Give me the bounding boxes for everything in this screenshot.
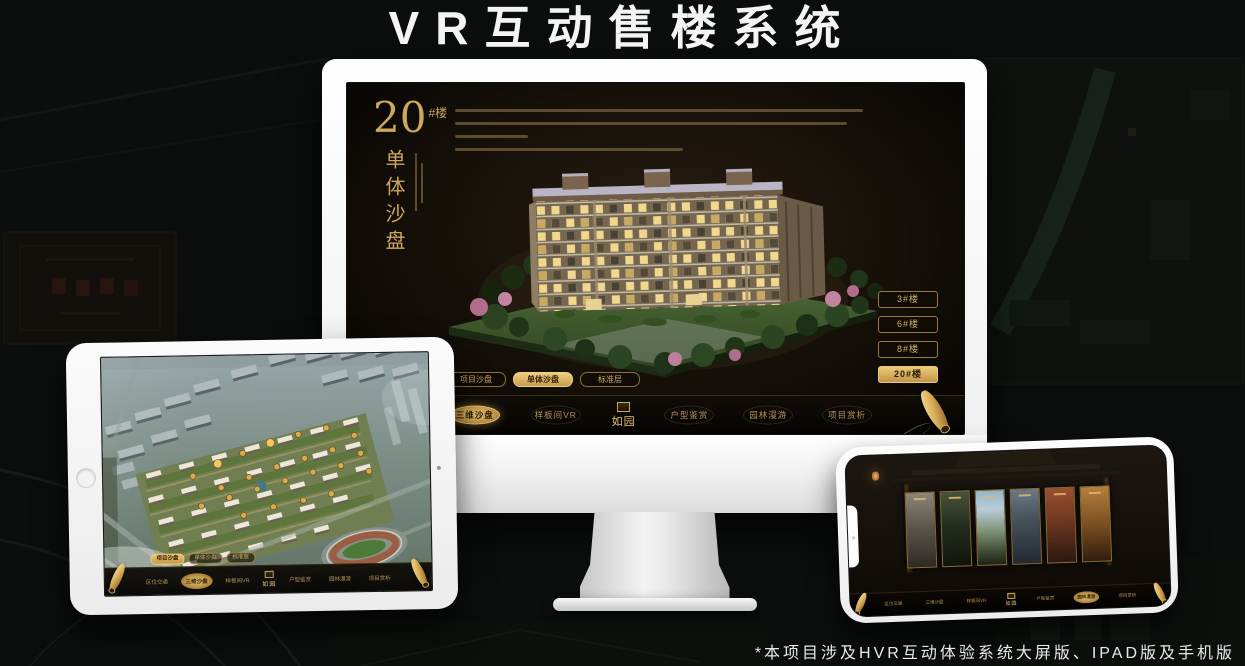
- nav-item-location-traffic[interactable]: 区位交通: [141, 573, 173, 590]
- gallery-panel-2[interactable]: [939, 490, 972, 567]
- building-heading: 20 #楼: [373, 97, 447, 139]
- tab-single-sandtable[interactable]: 单体沙盘: [513, 372, 573, 387]
- lantern-icon: [872, 471, 879, 480]
- nav-item-unit-plans[interactable]: 户型鉴赏: [284, 571, 316, 588]
- footnote: *本项目涉及HVR互动体验系统大屏版、IPAD版及手机版: [755, 639, 1235, 663]
- nav-item-garden-roam[interactable]: 园林漫游: [743, 405, 793, 425]
- gallery-panel-4[interactable]: [1009, 488, 1042, 565]
- brand-logo-text: 如园: [1005, 600, 1017, 607]
- floor-button-6[interactable]: 6#楼: [878, 316, 938, 333]
- nav-item-garden-roam[interactable]: 园林漫游: [324, 570, 356, 587]
- phone-notch: [846, 505, 859, 567]
- gallery-panel-5[interactable]: [1044, 487, 1077, 564]
- nav-item-3d-sandtable[interactable]: 三维沙盘: [921, 596, 947, 609]
- tab-standard-floor[interactable]: 标准层: [226, 552, 255, 563]
- scene-gallery: [847, 483, 1169, 570]
- nav-item-location-traffic[interactable]: 区位交通: [880, 598, 906, 611]
- brand-logo: 如园: [612, 402, 636, 429]
- home-button: [76, 468, 96, 488]
- brand-logo: 如园: [1005, 593, 1017, 607]
- floor-button-20[interactable]: 20#楼: [878, 366, 938, 383]
- tablet-nav-bar: 区位交通 三维沙盘 样板间VR 如园 户型鉴赏 园林漫游 项目赏析: [105, 562, 432, 596]
- seal-icon: [1007, 593, 1015, 599]
- phone-device: 区位交通 三维沙盘 样板间VR 如园 户型鉴赏 园林漫游 项目赏析: [835, 436, 1179, 624]
- nav-item-model-room-vr[interactable]: 样板间VR: [962, 595, 990, 608]
- heading-number: 20: [373, 97, 426, 139]
- page: VR互动售楼系统 20 #楼 单体沙盘: [0, 0, 1245, 666]
- building-model-3d[interactable]: [435, 149, 895, 399]
- nav-item-model-room-vr[interactable]: 样板间VR: [220, 572, 254, 589]
- nav-item-unit-plans[interactable]: 户型鉴赏: [664, 405, 714, 425]
- tablet-view-tab-group: 项目沙盘 单体沙盘 标准层: [150, 552, 255, 565]
- brand-logo: 如园: [262, 571, 276, 588]
- floor-button-3[interactable]: 3#楼: [878, 291, 938, 308]
- nav-item-project-gallery[interactable]: 项目赏析: [1114, 589, 1140, 602]
- brand-logo-text: 如园: [612, 413, 636, 429]
- tablet-device: 项目沙盘 单体沙盘 标准层 区位交通 三维沙盘 样板间VR 如园 户型鉴赏 园林…: [66, 337, 459, 616]
- tab-project-sandtable[interactable]: 项目沙盘: [150, 553, 184, 565]
- nav-item-project-gallery[interactable]: 项目赏析: [822, 405, 872, 425]
- gallery-panel-1[interactable]: [904, 492, 937, 569]
- seal-icon: [617, 402, 630, 412]
- phone-screen: 区位交通 三维沙盘 样板间VR 如园 户型鉴赏 园林漫游 项目赏析: [844, 444, 1171, 617]
- tab-standard-floor[interactable]: 标准层: [580, 372, 640, 387]
- gallery-panel-3[interactable]: [974, 489, 1007, 566]
- nav-item-garden-roam[interactable]: 园林漫游: [1073, 591, 1099, 604]
- nav-item-3d-sandtable[interactable]: 三维沙盘: [180, 572, 212, 589]
- nav-item-unit-plans[interactable]: 户型鉴赏: [1032, 592, 1058, 605]
- gallery-panel-6[interactable]: [1079, 485, 1112, 562]
- floor-button-group: 3#楼 6#楼 8#楼 20#楼: [878, 291, 938, 383]
- view-tab-group: 项目沙盘 单体沙盘 标准层: [446, 372, 640, 387]
- camera-dot: [437, 466, 441, 470]
- page-title: VR互动售楼系统: [0, 0, 1245, 56]
- heading-suffix: #楼: [428, 104, 447, 121]
- tab-single-sandtable[interactable]: 单体沙盘: [188, 553, 222, 565]
- nav-item-project-gallery[interactable]: 项目赏析: [364, 569, 396, 586]
- tablet-screen: 项目沙盘 单体沙盘 标准层 区位交通 三维沙盘 样板间VR 如园 户型鉴赏 园林…: [100, 351, 433, 597]
- seal-icon: [265, 571, 274, 578]
- intro-text-lines: [455, 109, 863, 161]
- heading-subtitle: 单体沙盘: [380, 149, 409, 257]
- monitor-stand: [580, 512, 730, 600]
- camera-dot: [852, 536, 855, 539]
- tab-project-sandtable[interactable]: 项目沙盘: [446, 372, 506, 387]
- nav-item-model-room-vr[interactable]: 样板间VR: [529, 405, 583, 425]
- monitor-stand-base: [553, 598, 757, 611]
- brand-logo-text: 如园: [262, 579, 276, 588]
- nav-item-3d-sandtable[interactable]: 三维沙盘: [450, 405, 500, 425]
- floor-button-8[interactable]: 8#楼: [878, 341, 938, 358]
